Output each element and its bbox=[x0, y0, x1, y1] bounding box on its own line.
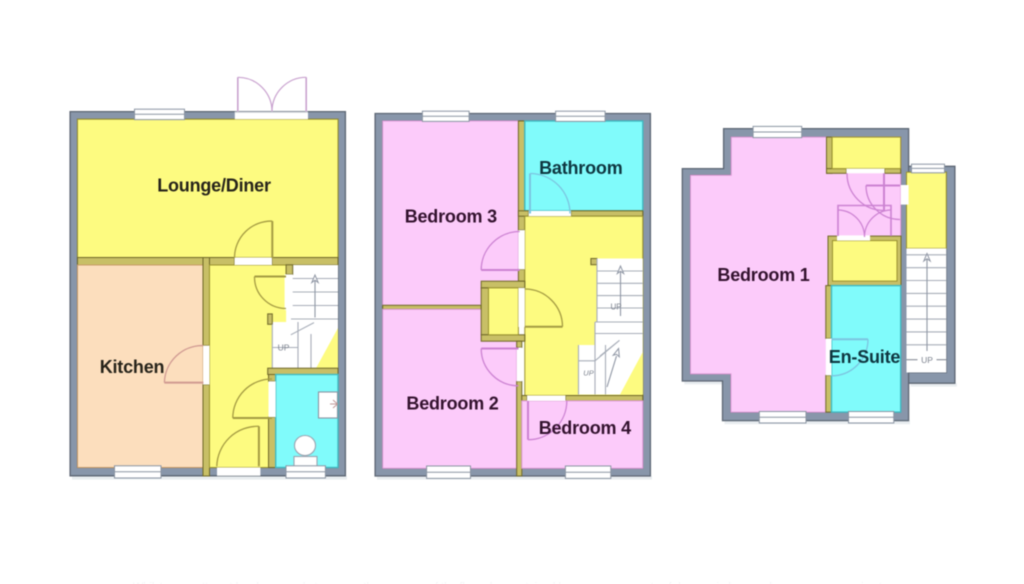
svg-text:Lounge/Diner: Lounge/Diner bbox=[157, 176, 271, 196]
svg-text:UP: UP bbox=[278, 343, 290, 353]
svg-text:UP: UP bbox=[921, 355, 933, 365]
svg-text:UP: UP bbox=[610, 303, 621, 312]
svg-text:Bedroom 3: Bedroom 3 bbox=[405, 206, 497, 226]
svg-text:Bathroom: Bathroom bbox=[539, 158, 622, 178]
svg-text:Bedroom 4: Bedroom 4 bbox=[539, 418, 631, 438]
svg-text:Kitchen: Kitchen bbox=[100, 357, 165, 377]
svg-text:UP: UP bbox=[583, 369, 593, 378]
svg-text:Bedroom 1: Bedroom 1 bbox=[717, 265, 809, 285]
svg-text:Bedroom 2: Bedroom 2 bbox=[406, 394, 498, 414]
svg-text:En-Suite: En-Suite bbox=[829, 347, 901, 367]
